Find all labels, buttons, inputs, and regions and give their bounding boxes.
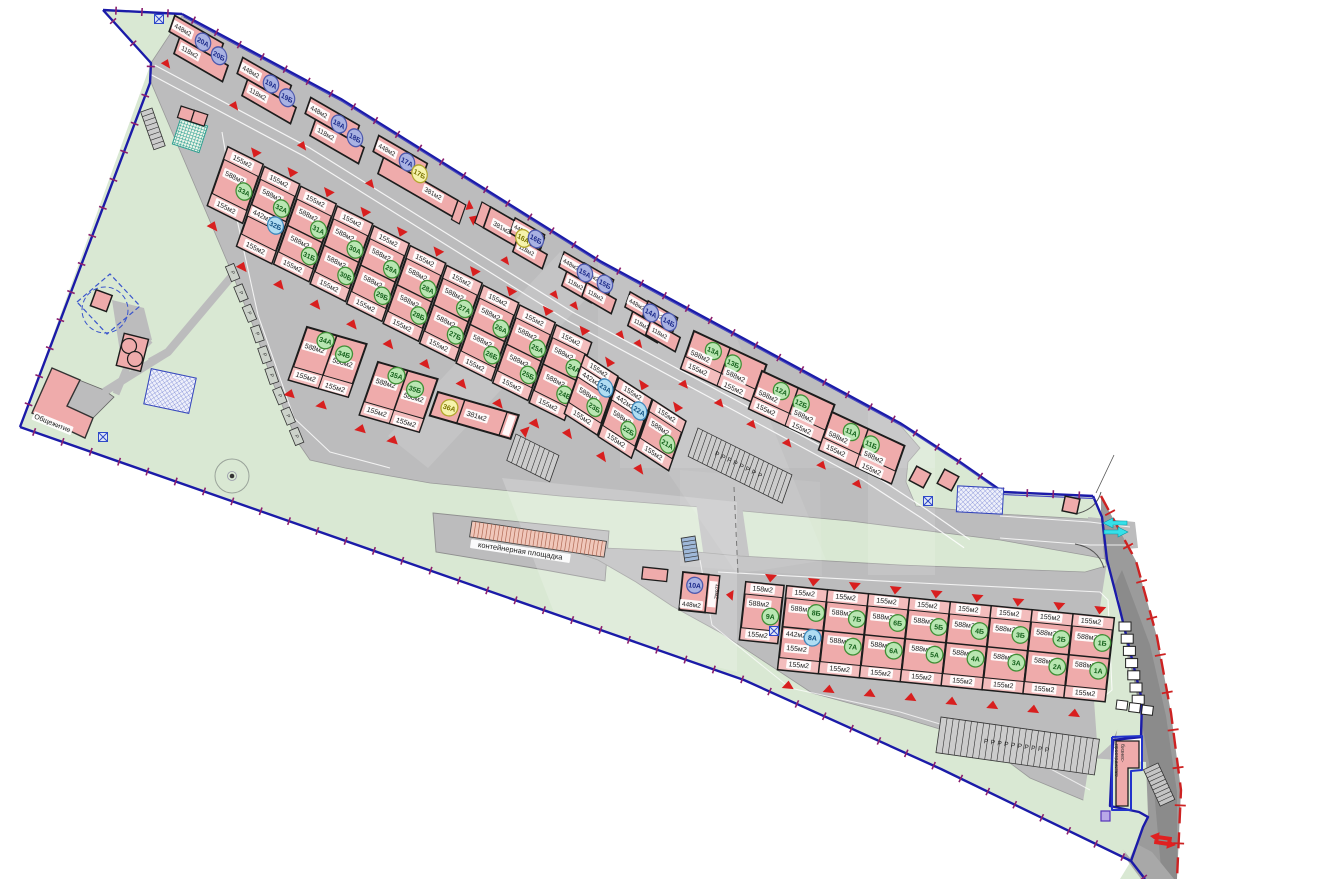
- svg-text:4А: 4А: [971, 656, 981, 664]
- svg-text:пространство: пространство: [1113, 744, 1119, 777]
- svg-text:7Б: 7Б: [852, 616, 862, 624]
- svg-text:8Б: 8Б: [811, 610, 821, 618]
- svg-text:10А: 10А: [688, 582, 701, 590]
- svg-text:4Б: 4Б: [975, 628, 985, 636]
- svg-text:1Б: 1Б: [1097, 640, 1107, 648]
- svg-text:6Б: 6Б: [893, 620, 903, 628]
- svg-text:3Б: 3Б: [1016, 632, 1026, 640]
- svg-text:2А: 2А: [1052, 664, 1062, 672]
- svg-text:8А: 8А: [808, 635, 818, 643]
- svg-text:5А: 5А: [930, 652, 940, 660]
- svg-text:7А: 7А: [848, 644, 858, 652]
- svg-text:2Б: 2Б: [1056, 636, 1066, 644]
- svg-text:3А: 3А: [1011, 660, 1021, 668]
- svg-text:1А: 1А: [1093, 668, 1103, 676]
- svg-text:9А: 9А: [765, 614, 775, 622]
- svg-text:6А: 6А: [889, 648, 899, 656]
- svg-text:5Б: 5Б: [934, 624, 944, 632]
